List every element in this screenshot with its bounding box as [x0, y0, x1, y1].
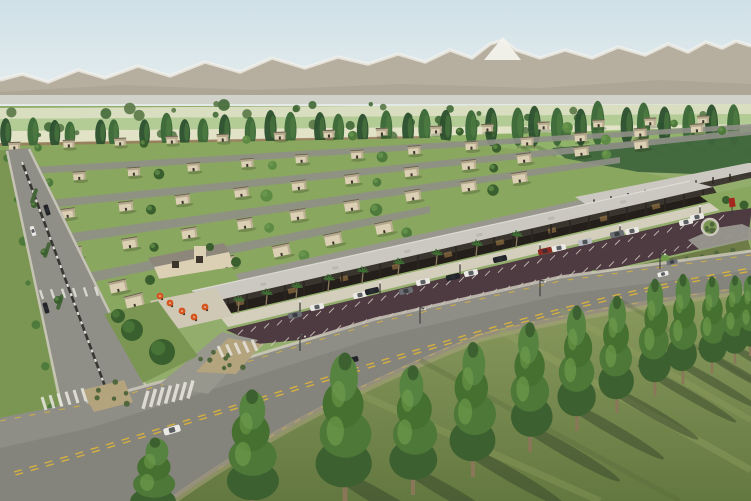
shrub — [705, 226, 709, 230]
poplar-highlight — [516, 376, 529, 401]
house-wall-shade — [531, 139, 533, 145]
umbrella-top — [169, 302, 171, 304]
far-tree — [134, 110, 145, 121]
house-wall-shade — [418, 148, 420, 154]
median-tree-highlight — [32, 203, 35, 206]
yard-tree-highlight — [349, 132, 354, 137]
house-door — [66, 215, 68, 218]
house-wall-shade — [491, 126, 493, 131]
yard-tree-highlight — [378, 153, 383, 158]
umbrella-top — [193, 316, 195, 318]
poplar-tip — [150, 438, 161, 448]
yard-tree-highlight — [265, 224, 270, 229]
far-tree — [218, 99, 230, 111]
umbrella-top — [159, 295, 161, 297]
house-wall-shade — [654, 120, 656, 125]
yard-tree-highlight — [671, 120, 675, 124]
house-wall-shade — [305, 156, 307, 162]
far-tree — [213, 112, 219, 118]
house-wall-shade — [83, 173, 85, 179]
house-door — [486, 128, 488, 131]
shrub — [710, 222, 715, 227]
tree — [206, 243, 214, 251]
house-door — [356, 155, 358, 158]
poplar-tip — [651, 279, 658, 293]
shrub — [222, 366, 226, 370]
verge-tree — [41, 362, 49, 370]
verge-tree — [32, 320, 41, 329]
house-door — [125, 208, 127, 211]
house-wall-shade — [707, 118, 709, 123]
yard-tree-highlight — [269, 162, 274, 167]
house-wall-shade — [644, 130, 646, 136]
far-tree — [569, 107, 577, 115]
house-wall-shade — [72, 142, 74, 147]
poplar-highlight — [458, 398, 472, 424]
poplar-highlight — [727, 312, 735, 329]
poplar-highlight — [424, 114, 429, 138]
house-door — [300, 160, 302, 163]
house-wall-shade — [547, 124, 549, 129]
street-light-head — [664, 253, 666, 255]
tree — [231, 257, 241, 267]
shrub — [112, 397, 116, 401]
house-door — [119, 142, 121, 145]
house-door — [470, 147, 472, 150]
light-pole-head — [459, 262, 461, 264]
shrub — [95, 395, 100, 400]
house-wall-shade — [701, 126, 703, 132]
poplar-highlight — [327, 416, 344, 446]
tree — [145, 275, 155, 285]
pavilion-window — [196, 256, 203, 263]
poplar-tip — [408, 365, 419, 380]
poplar-highlight — [140, 474, 154, 491]
light-pole-head — [379, 281, 381, 283]
house-door — [381, 132, 383, 135]
poplar-highlight — [250, 121, 255, 140]
far-tree — [309, 101, 317, 109]
house-door — [435, 130, 437, 133]
shrub — [207, 357, 212, 362]
poplar-highlight — [568, 329, 578, 351]
house-door — [328, 134, 330, 137]
poplar-highlight — [743, 309, 750, 325]
far-tree — [346, 121, 355, 130]
poplar-highlight — [402, 389, 414, 412]
house-wall-shade — [385, 130, 387, 135]
poplar-highlight — [676, 294, 684, 313]
poplar-highlight — [647, 300, 655, 321]
yard-tree-highlight — [141, 140, 145, 144]
aerial-render-canvas: Aerial rendering of a master-planned res… — [0, 0, 751, 501]
house-door — [68, 144, 70, 147]
house-door — [13, 146, 15, 149]
house-wall-shade — [602, 122, 604, 127]
yard-tree-highlight — [602, 136, 607, 141]
poplar-highlight — [445, 115, 450, 138]
shrub — [124, 391, 129, 396]
far-tree — [101, 108, 112, 119]
umbrella-top — [181, 310, 183, 312]
shrub — [223, 356, 228, 361]
poplar-highlight — [184, 123, 189, 141]
poplar-highlight — [471, 115, 476, 138]
monument-sign — [728, 198, 735, 208]
far-tree — [124, 103, 136, 115]
poplar-highlight — [520, 346, 530, 369]
yard-tree-highlight — [719, 127, 723, 131]
shrub — [211, 350, 216, 355]
poplar-highlight — [745, 291, 751, 305]
poplar-tip — [573, 305, 582, 320]
shrub — [124, 401, 130, 407]
far-tree — [6, 107, 16, 117]
shrub — [96, 388, 101, 393]
poplar-highlight — [362, 118, 367, 139]
house-wall-shade — [138, 169, 140, 175]
poplar-highlight — [517, 113, 522, 137]
house-door — [639, 134, 641, 137]
grove-tree-highlight — [151, 341, 165, 355]
yard-tree-highlight — [402, 229, 407, 234]
house-wall-shade — [18, 144, 20, 149]
house-door — [543, 126, 545, 129]
house-wall-shade — [440, 128, 442, 133]
light-pole-head — [619, 224, 621, 226]
poplar-highlight — [462, 367, 473, 391]
house-door — [649, 122, 651, 125]
house-door — [410, 173, 412, 176]
house-door — [598, 124, 600, 127]
yard-tree-highlight — [155, 170, 160, 175]
poplar-highlight — [290, 117, 295, 139]
yard-tree-highlight — [243, 136, 247, 140]
poplar-highlight — [33, 122, 38, 141]
shrub — [227, 363, 231, 367]
house-door — [181, 201, 183, 204]
poplar-tip — [613, 296, 621, 310]
house-wall-shade — [124, 140, 126, 145]
house-wall-shade — [332, 132, 334, 137]
poplar-highlight — [240, 413, 253, 435]
house-door — [298, 187, 300, 190]
house-door — [192, 168, 194, 171]
shrub — [712, 228, 716, 232]
grove-tree-highlight — [123, 321, 135, 333]
house-door — [526, 142, 528, 145]
house-wall-shade — [585, 135, 587, 141]
house-door — [523, 160, 525, 163]
median-tree-highlight — [55, 297, 59, 301]
yard-tree-highlight — [35, 145, 39, 149]
house-door — [246, 164, 248, 167]
poplar-tip — [525, 322, 535, 337]
yard-tree-highlight — [490, 165, 494, 169]
house-door — [133, 173, 135, 176]
house-door — [171, 140, 173, 143]
poplar-highlight — [144, 454, 155, 469]
poplar-highlight — [564, 358, 576, 382]
poplar-tip — [732, 275, 738, 285]
yard-tree-highlight — [457, 128, 461, 132]
house-door — [351, 180, 353, 183]
poplar-highlight — [235, 442, 251, 466]
house-wall-shade — [251, 161, 253, 167]
yard-tree-highlight — [371, 205, 377, 211]
house-wall-shade — [361, 152, 363, 158]
poplar-highlight — [397, 419, 412, 444]
poplar-highlight — [644, 328, 654, 351]
median-tree-highlight — [41, 249, 45, 253]
street-light-head — [544, 281, 546, 283]
poplar-highlight — [338, 118, 343, 139]
far-tree — [369, 102, 373, 106]
poplar-highlight — [203, 122, 208, 141]
house-wall-shade — [197, 165, 199, 171]
house-door — [640, 145, 642, 148]
poplar-highlight — [332, 381, 346, 408]
yard-tree-highlight — [373, 179, 377, 183]
house-door — [702, 120, 704, 123]
far-tree — [380, 104, 387, 111]
poplar-highlight — [711, 110, 717, 136]
yard-tree-highlight — [147, 206, 152, 211]
house-wall-shade — [475, 143, 477, 149]
far-tree — [171, 108, 176, 113]
house-door — [413, 151, 415, 154]
house-door — [222, 138, 224, 141]
house-wall-shade — [283, 134, 285, 139]
far-tree — [476, 111, 481, 116]
poplar-highlight — [557, 113, 562, 137]
poplar-highlight — [705, 294, 712, 311]
poplar-highlight — [408, 117, 413, 138]
poplar-highlight — [673, 320, 682, 341]
house-door — [78, 177, 80, 180]
yard-tree-highlight — [489, 186, 495, 192]
poplar-highlight — [606, 345, 617, 368]
poplar-tip — [709, 276, 715, 287]
far-tree — [293, 106, 299, 112]
grove-tree-highlight — [112, 310, 120, 318]
house-door — [696, 129, 698, 132]
poplar-tip — [468, 342, 479, 358]
yard-tree-highlight — [493, 144, 498, 149]
poplar-highlight — [5, 122, 10, 141]
tree — [740, 201, 749, 210]
house-door — [580, 153, 582, 156]
poplar-tip — [680, 274, 687, 287]
house-door — [580, 138, 582, 141]
verge-tree — [25, 280, 30, 285]
shrub — [113, 379, 119, 385]
shrub — [198, 357, 203, 362]
light-pole-head — [699, 205, 701, 207]
poplar-tip — [339, 353, 352, 371]
yard-tree-highlight — [300, 251, 305, 256]
yard-tree-highlight — [262, 191, 268, 197]
poplar-highlight — [609, 317, 618, 338]
poplar-highlight — [144, 123, 149, 141]
house-door — [240, 194, 242, 197]
yard-tree-highlight — [150, 244, 155, 249]
pavilion-window — [172, 261, 179, 268]
aerial-render: Aerial rendering of a master-planned res… — [0, 0, 751, 501]
house-wall-shade — [226, 136, 228, 141]
shrub — [240, 365, 246, 371]
poplar-tip — [246, 389, 258, 404]
light-pole-head — [299, 300, 301, 302]
poplar-highlight — [703, 317, 712, 336]
street-light-head — [304, 336, 306, 338]
poplar-highlight — [729, 292, 736, 307]
house-door — [468, 166, 470, 169]
yard-tree-highlight — [563, 123, 568, 128]
yard-tree-highlight — [603, 151, 608, 156]
street-light-head — [424, 308, 426, 310]
poplar-highlight — [100, 123, 105, 141]
light-pole-head — [539, 243, 541, 245]
poplar-highlight — [54, 124, 59, 142]
house-wall-shade — [175, 138, 177, 143]
house-door — [279, 136, 281, 139]
umbrella-top — [204, 306, 206, 308]
